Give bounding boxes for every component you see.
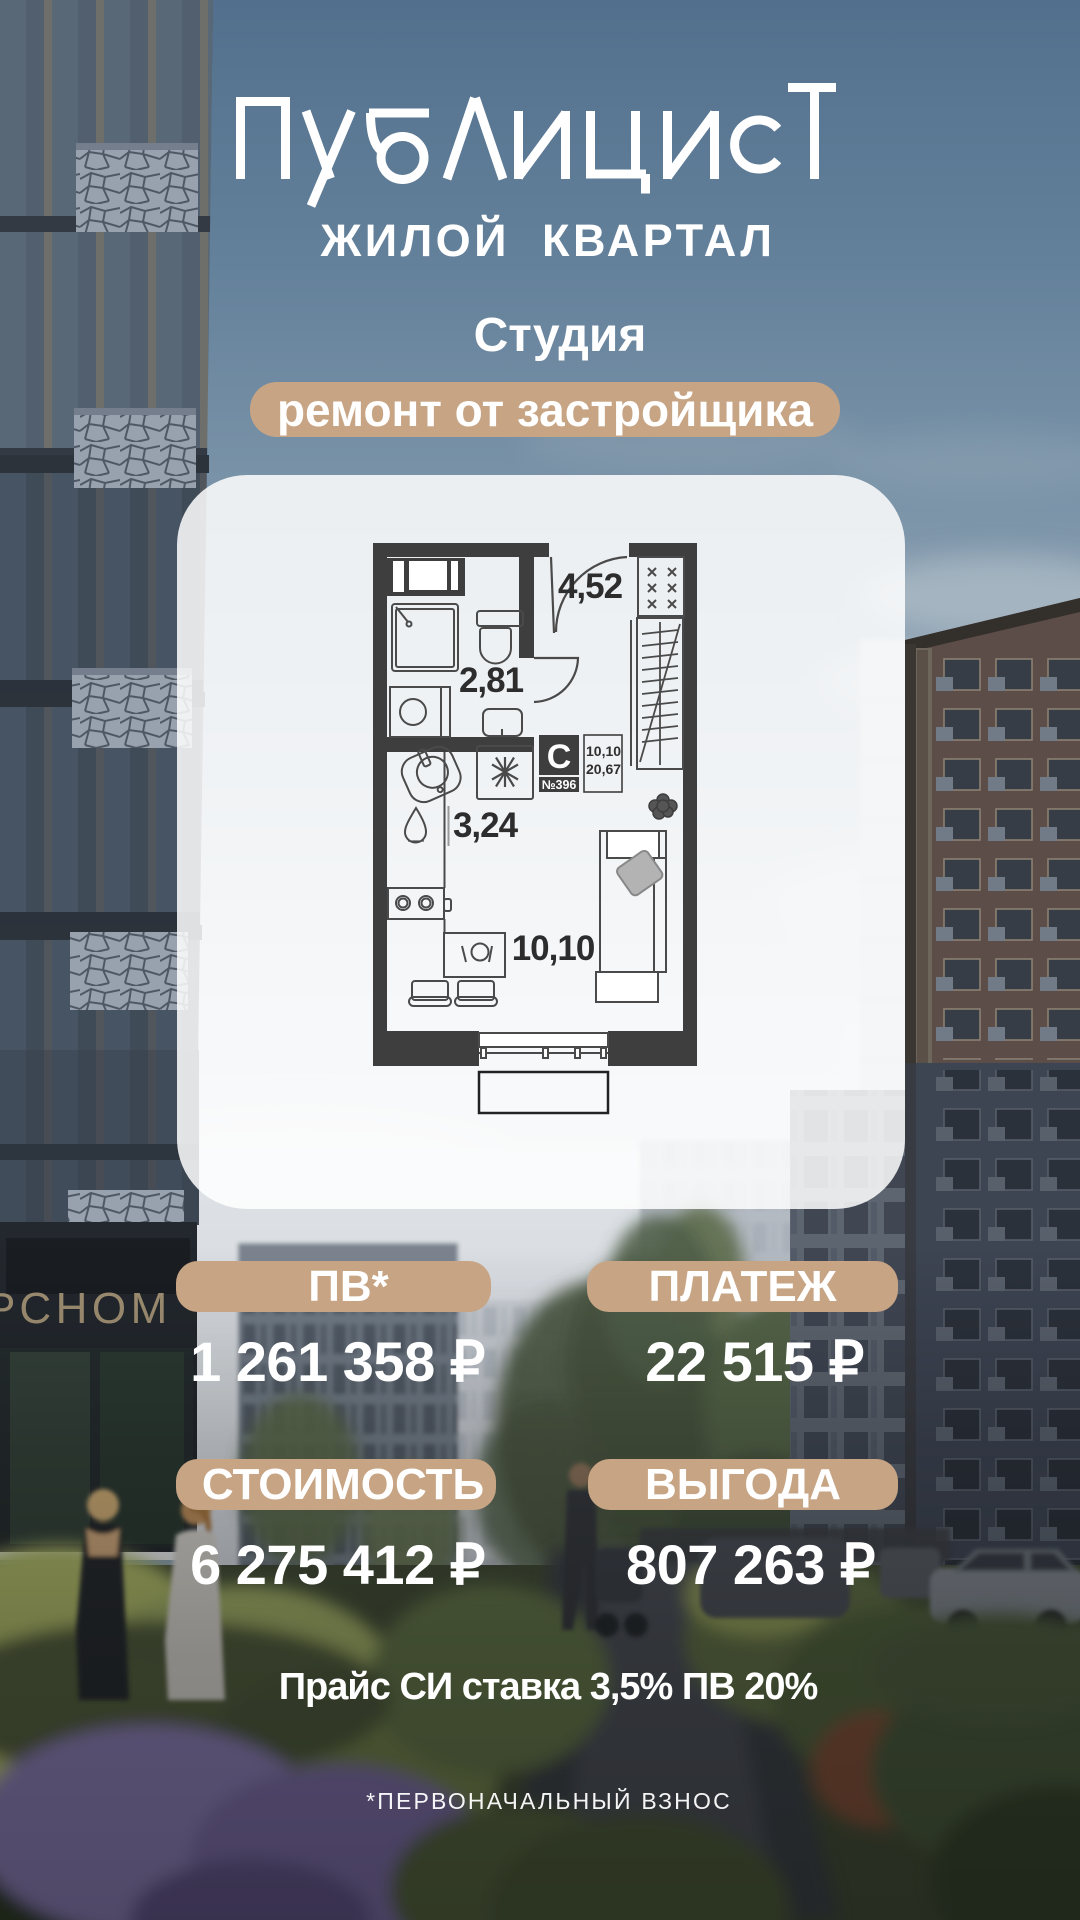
svg-text:4,52: 4,52	[558, 567, 623, 606]
svg-text:10,10: 10,10	[512, 929, 595, 968]
svg-text:10,10: 10,10	[586, 743, 621, 759]
svg-text:20,67: 20,67	[586, 761, 621, 777]
svg-text:С: С	[547, 738, 572, 776]
svg-text:№396: №396	[542, 778, 577, 792]
svg-text:2,81: 2,81	[459, 661, 524, 700]
svg-text:3,24: 3,24	[453, 806, 519, 845]
